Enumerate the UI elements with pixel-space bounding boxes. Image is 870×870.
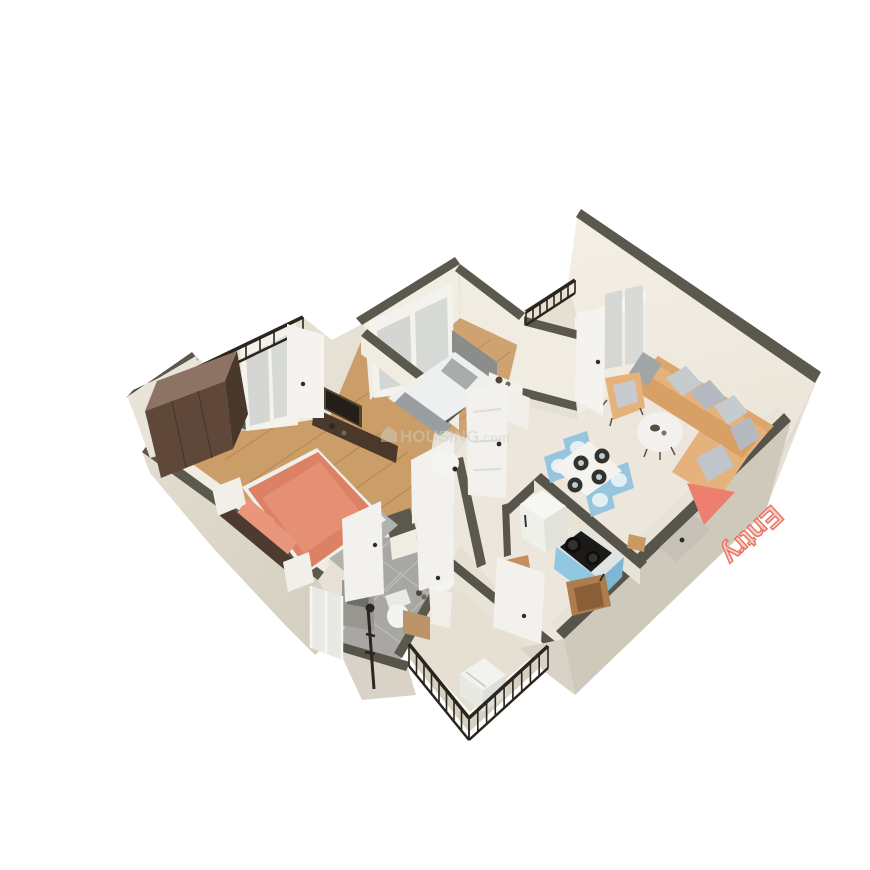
svg-text:HOUSING.com: HOUSING.com	[400, 427, 510, 446]
